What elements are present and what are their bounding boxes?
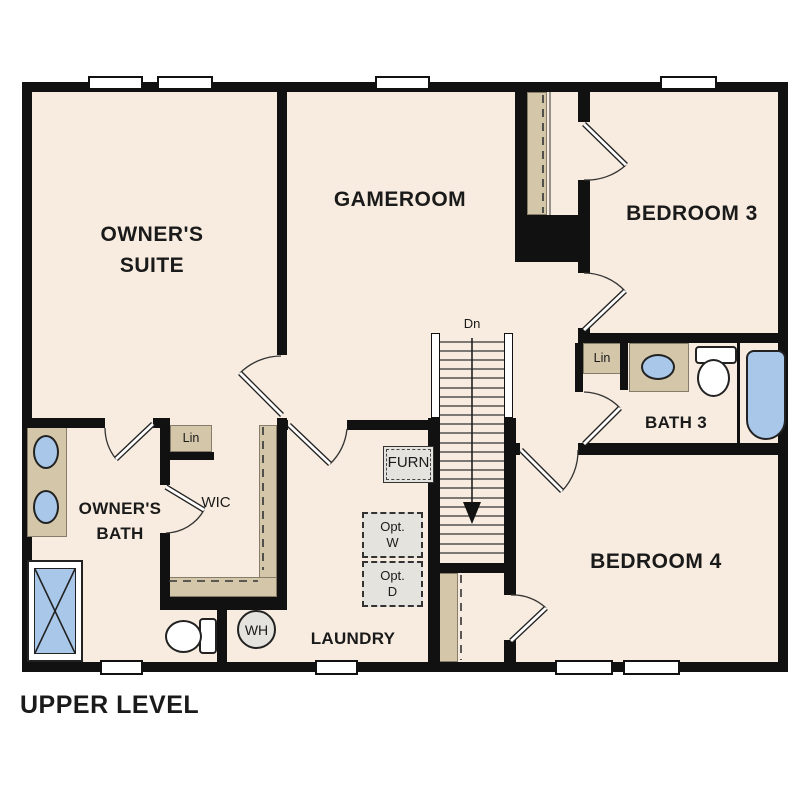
stair-railing-left <box>431 333 440 418</box>
wall-segment <box>504 455 516 595</box>
wall-segment <box>277 418 287 610</box>
wall-segment <box>737 343 740 443</box>
wall-segment <box>504 443 520 455</box>
stair-railing-right <box>504 333 513 418</box>
optional-washer: Opt. W <box>362 512 423 558</box>
window <box>555 660 613 675</box>
wic-shelf-south <box>165 577 277 597</box>
wall-segment <box>515 92 527 215</box>
wall-segment <box>347 420 440 430</box>
room-label-bath3: BATH 3 <box>636 410 716 435</box>
wall-segment <box>578 333 788 343</box>
wall-segment <box>160 452 214 460</box>
wall-segment <box>22 418 105 428</box>
wall-segment <box>578 443 788 455</box>
furnace-label: FURN <box>383 455 434 471</box>
window <box>375 76 430 90</box>
water-heater: WH <box>237 610 276 649</box>
wall-segment <box>277 420 288 430</box>
optional-dryer-label: Opt. D <box>364 568 421 600</box>
bathtub <box>746 350 786 440</box>
wall-segment <box>428 563 516 573</box>
wall-segment <box>160 597 287 610</box>
wall-segment <box>578 180 590 273</box>
room-label-owners-suite: OWNER'S SUITE <box>62 219 242 281</box>
water-heater-label: WH <box>245 622 268 638</box>
shower-pan <box>34 568 76 654</box>
wall-segment <box>575 343 583 392</box>
sink <box>33 435 59 469</box>
optional-dryer: Opt. D <box>362 561 423 607</box>
room-label-bedroom3: BEDROOM 3 <box>602 198 782 229</box>
wall-segment <box>217 600 227 672</box>
floorplan-canvas: WH Opt. W Opt. D <box>0 0 810 810</box>
window <box>157 76 213 90</box>
window <box>100 660 143 675</box>
sink <box>641 354 675 380</box>
linen-label-wic: Lin <box>170 430 212 446</box>
stair-down-label: Dn <box>452 316 492 332</box>
window <box>315 660 358 675</box>
window <box>88 76 143 90</box>
wic-shelf-east <box>259 425 277 597</box>
toilet-bowl <box>697 359 730 397</box>
room-label-gameroom: GAMEROOM <box>310 184 490 215</box>
bedroom4-closet-shelf <box>437 573 458 662</box>
room-label-bedroom4: BEDROOM 4 <box>566 546 746 577</box>
room-label-owners-bath: OWNER'S BATH <box>45 496 195 546</box>
wall-segment <box>277 92 287 355</box>
window <box>660 76 717 90</box>
toilet-bowl <box>165 620 202 653</box>
wall-segment <box>153 418 170 428</box>
wall-segment <box>504 640 516 672</box>
room-label-wic: WIC <box>196 494 236 511</box>
wall-segment <box>620 343 628 390</box>
linen-label-bath3: Lin <box>583 350 621 366</box>
window <box>623 660 680 675</box>
room-label-laundry: LAUNDRY <box>303 626 403 651</box>
plan-title: UPPER LEVEL <box>20 691 199 720</box>
bedroom3-closet-shelf <box>527 92 547 215</box>
wall-segment <box>578 92 590 122</box>
optional-washer-label: Opt. W <box>364 519 421 551</box>
